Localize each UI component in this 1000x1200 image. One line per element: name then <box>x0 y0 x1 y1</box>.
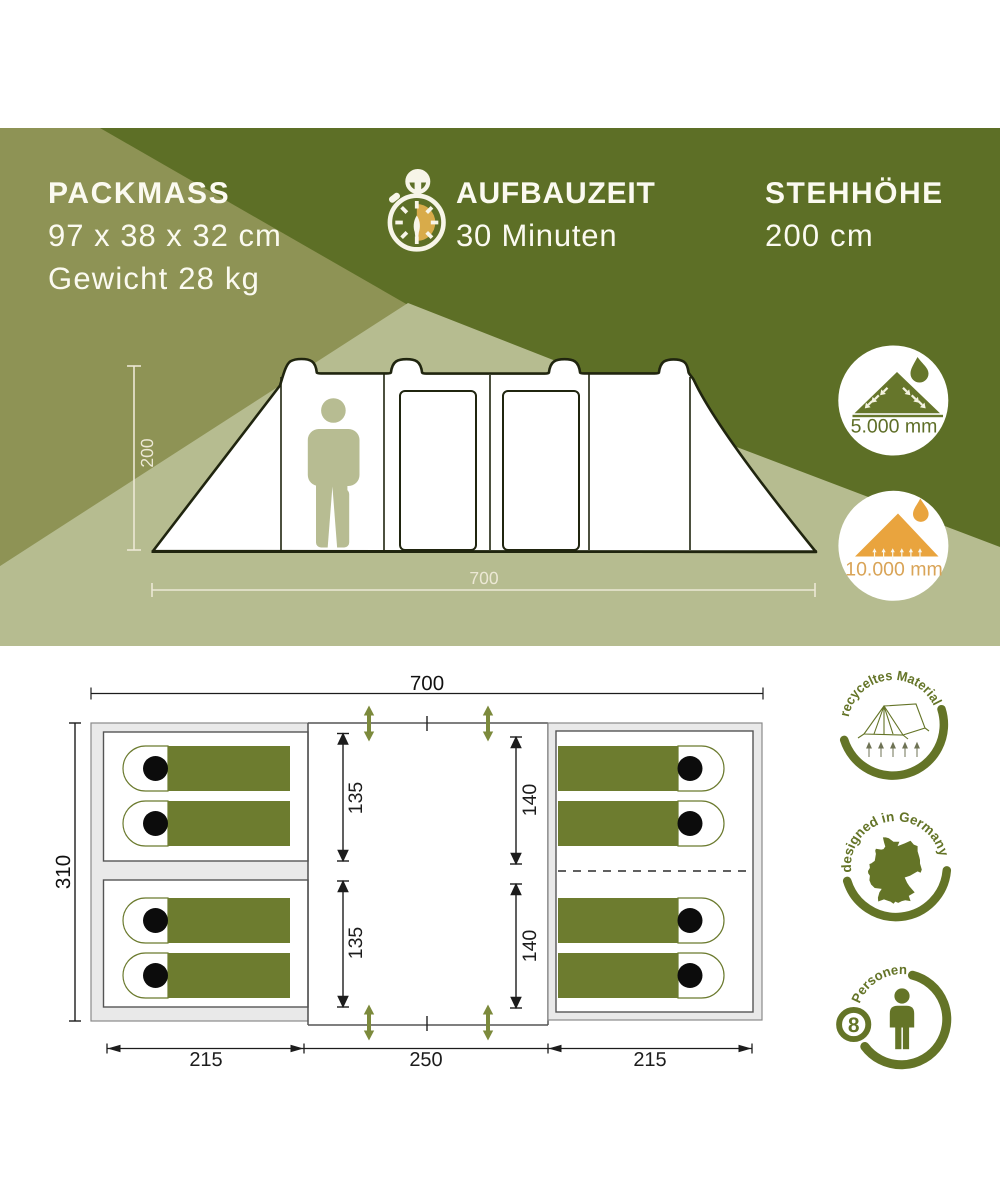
svg-text:250: 250 <box>409 1049 442 1071</box>
svg-text:215: 215 <box>633 1049 666 1071</box>
svg-text:30 Minuten: 30 Minuten <box>456 218 617 253</box>
svg-text:STEHHÖHE: STEHHÖHE <box>765 177 944 210</box>
svg-text:700: 700 <box>469 568 498 588</box>
svg-text:Gewicht 28 kg: Gewicht 28 kg <box>48 261 260 296</box>
svg-text:200: 200 <box>137 438 157 467</box>
svg-text:135: 135 <box>345 927 367 960</box>
svg-text:97 x 38 x 32 cm: 97 x 38 x 32 cm <box>48 218 282 253</box>
svg-text:5.000 mm: 5.000 mm <box>851 416 938 438</box>
svg-text:135: 135 <box>345 782 367 815</box>
svg-text:140: 140 <box>519 930 541 963</box>
svg-text:PACKMASS: PACKMASS <box>48 177 230 210</box>
svg-text:200 cm: 200 cm <box>765 218 874 253</box>
svg-text:215: 215 <box>189 1049 222 1071</box>
svg-text:8: 8 <box>848 1014 860 1037</box>
svg-text:AUFBAUZEIT: AUFBAUZEIT <box>456 177 656 210</box>
svg-text:700: 700 <box>410 672 444 695</box>
svg-text:140: 140 <box>519 784 541 817</box>
svg-text:310: 310 <box>52 855 75 889</box>
svg-text:10.000 mm: 10.000 mm <box>845 559 943 581</box>
